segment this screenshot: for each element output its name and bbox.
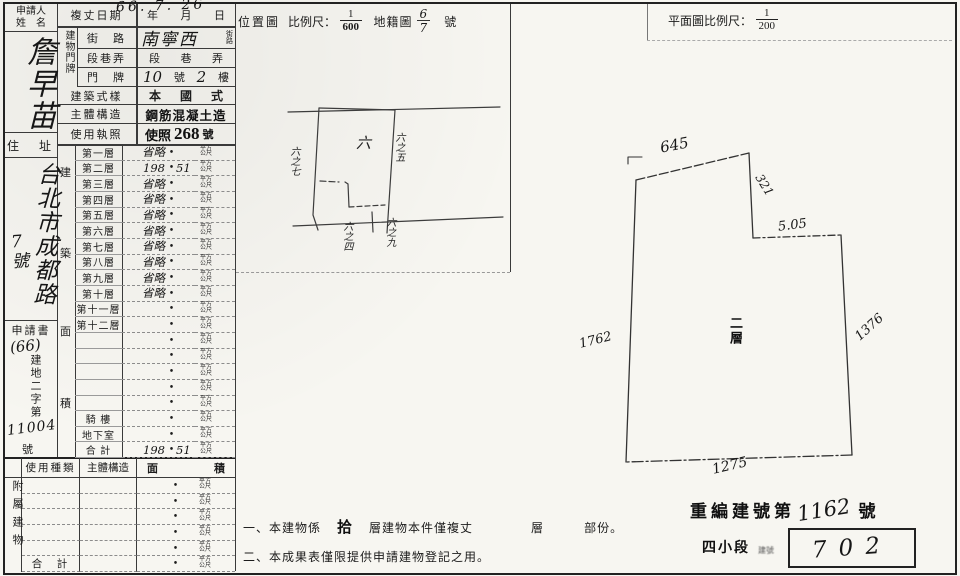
floor-table-row: • 平方 公尺 — [57, 380, 235, 396]
location-scale-fraction: 1 600 — [340, 9, 362, 33]
floor-label: 第一層 — [75, 145, 122, 161]
floor-area-cell: 省略 • — [122, 176, 195, 192]
sqm-unit-label: 平方 公尺 — [195, 442, 235, 458]
sqm-unit-label: 平方 公尺 — [195, 223, 235, 239]
annex-table-row: 合 計 • 平方 公尺 — [5, 556, 235, 572]
floor-table-row: 第三層 省略 • 平方 公尺 — [57, 176, 235, 192]
area-caption-char: 築 — [60, 245, 71, 261]
address-number-value: 7號 — [4, 231, 33, 293]
annex-area-header: 面 積 — [137, 458, 235, 477]
annex-caption: 附屬建物 — [9, 480, 25, 570]
sqm-unit-label: 平方 公尺 — [195, 176, 235, 192]
door-floor-value: 2 — [197, 68, 207, 86]
sqm-unit-label: 平方 公尺 — [199, 527, 235, 538]
floor-label: 第十二層 — [75, 317, 122, 333]
floor-plan-sketch — [570, 135, 935, 480]
floor-table-row: 第十二層 • 平方 公尺 — [57, 317, 235, 333]
note-1-floors-value: 拾 — [337, 516, 353, 537]
location-map-sketch — [275, 92, 515, 242]
floor-area-cell: • — [122, 349, 195, 365]
divider — [235, 4, 236, 571]
floor-area-cell: 省略 • — [122, 192, 195, 208]
floor-label: 地下室 — [75, 427, 122, 443]
floor-label: 第五層 — [75, 208, 122, 224]
floor-table-row: 第十層 省略 • 平方 公尺 — [57, 286, 235, 302]
floor-table-row: 第十一層 • 平方 公尺 — [57, 302, 235, 318]
floor-area-table: 第一層 省略 • 平方 公尺 第二層 198 • 51 — [57, 145, 235, 458]
application-word: 建地二字第 — [27, 354, 43, 420]
room-label: 二層 — [726, 316, 745, 358]
floor-area-cell: 省略 • — [122, 239, 195, 255]
location-map-title: 位置圖 — [238, 13, 280, 30]
floor-table-row: 第六層 省略 • 平方 公尺 — [57, 223, 235, 239]
street-value-cell: 南寧西 街 路 — [137, 27, 235, 49]
section-number-line: 四小段 建號 — [702, 537, 780, 557]
floor-table-row: 合 計 198 • 51 平方 公尺 — [57, 442, 235, 458]
floor-label — [75, 380, 122, 396]
floor-table-row: 第二層 198 • 51 平方 公尺 — [57, 161, 235, 177]
building-style-label: 建築式樣 — [57, 87, 137, 105]
floor-area-cell: • — [122, 302, 195, 318]
floor-area-cell: • — [122, 411, 195, 427]
floor-label — [75, 349, 122, 365]
area-caption-char: 面 — [60, 323, 71, 339]
annex-table-row: • 平方 公尺 — [5, 478, 235, 494]
sqm-unit-label: 平方 公尺 — [195, 333, 235, 349]
floor-area-cell: 省略 • — [122, 270, 195, 286]
note-1: 一、本建物係 拾 層建物本件僅複丈 層 部份。 — [243, 516, 693, 537]
sqm-unit-label: 平方 公尺 — [195, 145, 235, 161]
section-lane-values: 段 巷 弄 — [137, 49, 235, 68]
sqm-unit-label: 平方 公尺 — [199, 480, 235, 491]
floor-area-cell: • — [122, 317, 195, 333]
annex-table: 使用種類 主體構造 面 積 • 平方 — [5, 458, 235, 572]
floor-area-cell: • — [122, 427, 195, 443]
address-label: 住 址 — [5, 132, 57, 158]
floor-area-cell: • — [122, 364, 195, 380]
plan-header-left-border — [647, 4, 648, 40]
floor-table-row: 騎 樓 • 平方 公尺 — [57, 411, 235, 427]
floor-table-row: • 平方 公尺 — [57, 396, 235, 412]
applicant-name-value: 詹早苗 — [16, 36, 60, 136]
floor-table-row: 第五層 省略 • 平方 公尺 — [57, 208, 235, 224]
plan-header-bottom-border — [647, 40, 952, 41]
floor-area-cell: 省略 • — [122, 286, 195, 302]
door-number-value: 10 — [143, 68, 162, 86]
doorplate-group-label: 建物門牌 — [61, 30, 76, 85]
location-map-header: 位置圖 比例尺： 1 600 地籍圖 6 7 號 — [238, 8, 510, 34]
floor-area-cell: 198 • 51 — [122, 161, 195, 177]
floor-area-cell: 省略 • — [122, 145, 195, 161]
notes: 一、本建物係 拾 層建物本件僅複丈 層 部份。 二、本成果表僅限提供申請建物登記… — [243, 516, 693, 565]
door-number-label: 門 牌 — [77, 68, 137, 87]
annex-table-row: • 平方 公尺 — [5, 541, 235, 557]
sqm-unit-label: 平方 公尺 — [195, 255, 235, 271]
sqm-unit-label: 平方 公尺 — [195, 317, 235, 333]
floor-label — [75, 364, 122, 380]
floor-area-cell: 198 • 51 — [122, 442, 195, 458]
building-style-value: 本 國 式 — [137, 87, 235, 105]
cadastral-sheet-fraction: 6 7 — [417, 8, 431, 34]
license-number: 268 — [174, 124, 200, 144]
sqm-unit-label: 平方 公尺 — [195, 270, 235, 286]
structure-value: 鋼筋混凝土造 — [137, 105, 235, 124]
lot-number-right: 六之五 — [393, 132, 404, 162]
annex-structure-header: 主體構造 — [80, 458, 137, 477]
floor-table-row: 地下室 • 平方 公尺 — [57, 427, 235, 443]
lot-number-center: 六 — [356, 138, 371, 149]
street-label: 街 路 — [77, 27, 137, 49]
annex-table-row: • 平方 公尺 — [5, 494, 235, 510]
door-number-cell: 10 號 2 樓 — [137, 68, 235, 87]
sqm-unit-label: 平方 公尺 — [195, 286, 235, 302]
lot-number-bottom-left: 六之四 — [341, 221, 352, 251]
lot-number-left: 六之七 — [288, 146, 299, 176]
floor-table-row: • 平方 公尺 — [57, 333, 235, 349]
application-number-suffix: 號 — [22, 441, 33, 457]
building-survey-form: 申請人 姓 名 詹早苗 住 址 台北市成都路 7號 申請書 (66) 建地二字第… — [0, 0, 960, 576]
annex-rows: • 平方 公尺 • — [5, 478, 235, 572]
floor-table-row: 第九層 省略 • 平方 公尺 — [57, 270, 235, 286]
sqm-unit-label: 平方 公尺 — [195, 380, 235, 396]
sqm-unit-label: 平方 公尺 — [195, 208, 235, 224]
floor-table-row: • 平方 公尺 — [57, 349, 235, 365]
plan-scale-fraction: 1 200 — [756, 8, 778, 32]
section-lane-label: 段巷弄 — [77, 49, 137, 68]
floor-area-cell: • — [122, 333, 195, 349]
location-box-bottom-border — [236, 272, 510, 273]
annex-use-header: 使用種類 — [22, 458, 80, 477]
sqm-unit-label: 平方 公尺 — [195, 396, 235, 412]
sqm-unit-label: 平方 公尺 — [195, 302, 235, 318]
sqm-unit-label: 平方 公尺 — [195, 349, 235, 365]
floor-label: 合 計 — [75, 442, 122, 458]
floor-label: 第十一層 — [75, 302, 122, 318]
sqm-unit-label: 平方 公尺 — [199, 558, 235, 569]
floor-area-cell: 省略 • — [122, 208, 195, 224]
floor-area-cell: 省略 • — [122, 255, 195, 271]
sqm-unit-label: 平方 公尺 — [195, 192, 235, 208]
structure-label: 主體構造 — [57, 105, 137, 124]
sqm-unit-label: 平方 公尺 — [195, 411, 235, 427]
building-number-value: 702 — [811, 532, 893, 564]
floor-label — [75, 333, 122, 349]
area-caption-char: 建 — [60, 164, 71, 180]
area-caption-char: 積 — [60, 395, 71, 411]
lot-number-bottom-right: 六之九 — [384, 217, 395, 247]
street-value: 南寧西 — [141, 25, 198, 50]
annex-table-row: • 平方 公尺 — [5, 525, 235, 541]
floor-label: 第八層 — [75, 255, 122, 271]
section-small-label: 建號 — [758, 545, 774, 556]
floor-label — [75, 396, 122, 412]
applicant-header: 申請人 姓 名 — [5, 4, 57, 32]
floor-label: 第六層 — [75, 223, 122, 239]
annex-table-row: • 平方 公尺 — [5, 509, 235, 525]
floor-label: 第七層 — [75, 239, 122, 255]
license-value-cell: 使照 268 號 — [137, 124, 235, 145]
sqm-unit-label: 平方 公尺 — [195, 239, 235, 255]
license-label: 使用執照 — [57, 124, 137, 145]
floor-table-row: 第八層 省略 • 平方 公尺 — [57, 255, 235, 271]
annex-header-row: 使用種類 主體構造 面 積 — [5, 458, 235, 478]
floor-label: 第三層 — [75, 176, 122, 192]
floor-area-cell: 省略 • — [122, 223, 195, 239]
sqm-unit-label: 平方 公尺 — [195, 161, 235, 177]
floor-label: 第四層 — [75, 192, 122, 208]
floor-area-cell: • — [122, 380, 195, 396]
floor-table-row: 第一層 省略 • 平方 公尺 — [57, 145, 235, 161]
floor-table-row: 第四層 省略 • 平方 公尺 — [57, 192, 235, 208]
floor-label: 第九層 — [75, 270, 122, 286]
floor-table-row: • 平方 公尺 — [57, 364, 235, 380]
note-2: 二、本成果表僅限提供申請建物登記之用。 — [243, 548, 693, 565]
floor-table-row: 第七層 省略 • 平方 公尺 — [57, 239, 235, 255]
sqm-unit-label: 平方 公尺 — [199, 543, 235, 554]
sqm-unit-label: 平方 公尺 — [199, 496, 235, 507]
floor-area-cell: • — [122, 396, 195, 412]
sqm-unit-label: 平方 公尺 — [195, 364, 235, 380]
building-number-box: 702 — [788, 528, 916, 568]
floor-plan-title: 平面圖比例尺： — [668, 12, 752, 29]
floor-plan-header: 平面圖比例尺： 1 200 — [668, 8, 782, 32]
street-unit: 街 路 — [226, 31, 235, 45]
sqm-unit-label: 平方 公尺 — [199, 511, 235, 522]
sqm-unit-label: 平方 公尺 — [195, 427, 235, 443]
section-label: 四小段 — [702, 537, 750, 557]
floor-label: 第二層 — [75, 161, 122, 177]
renumber-value: 1162 — [795, 494, 852, 526]
renumber-stamp: 重編建號第 1162 號 — [690, 497, 875, 522]
floor-label: 騎 樓 — [75, 411, 122, 427]
floor-label: 第十層 — [75, 286, 122, 302]
